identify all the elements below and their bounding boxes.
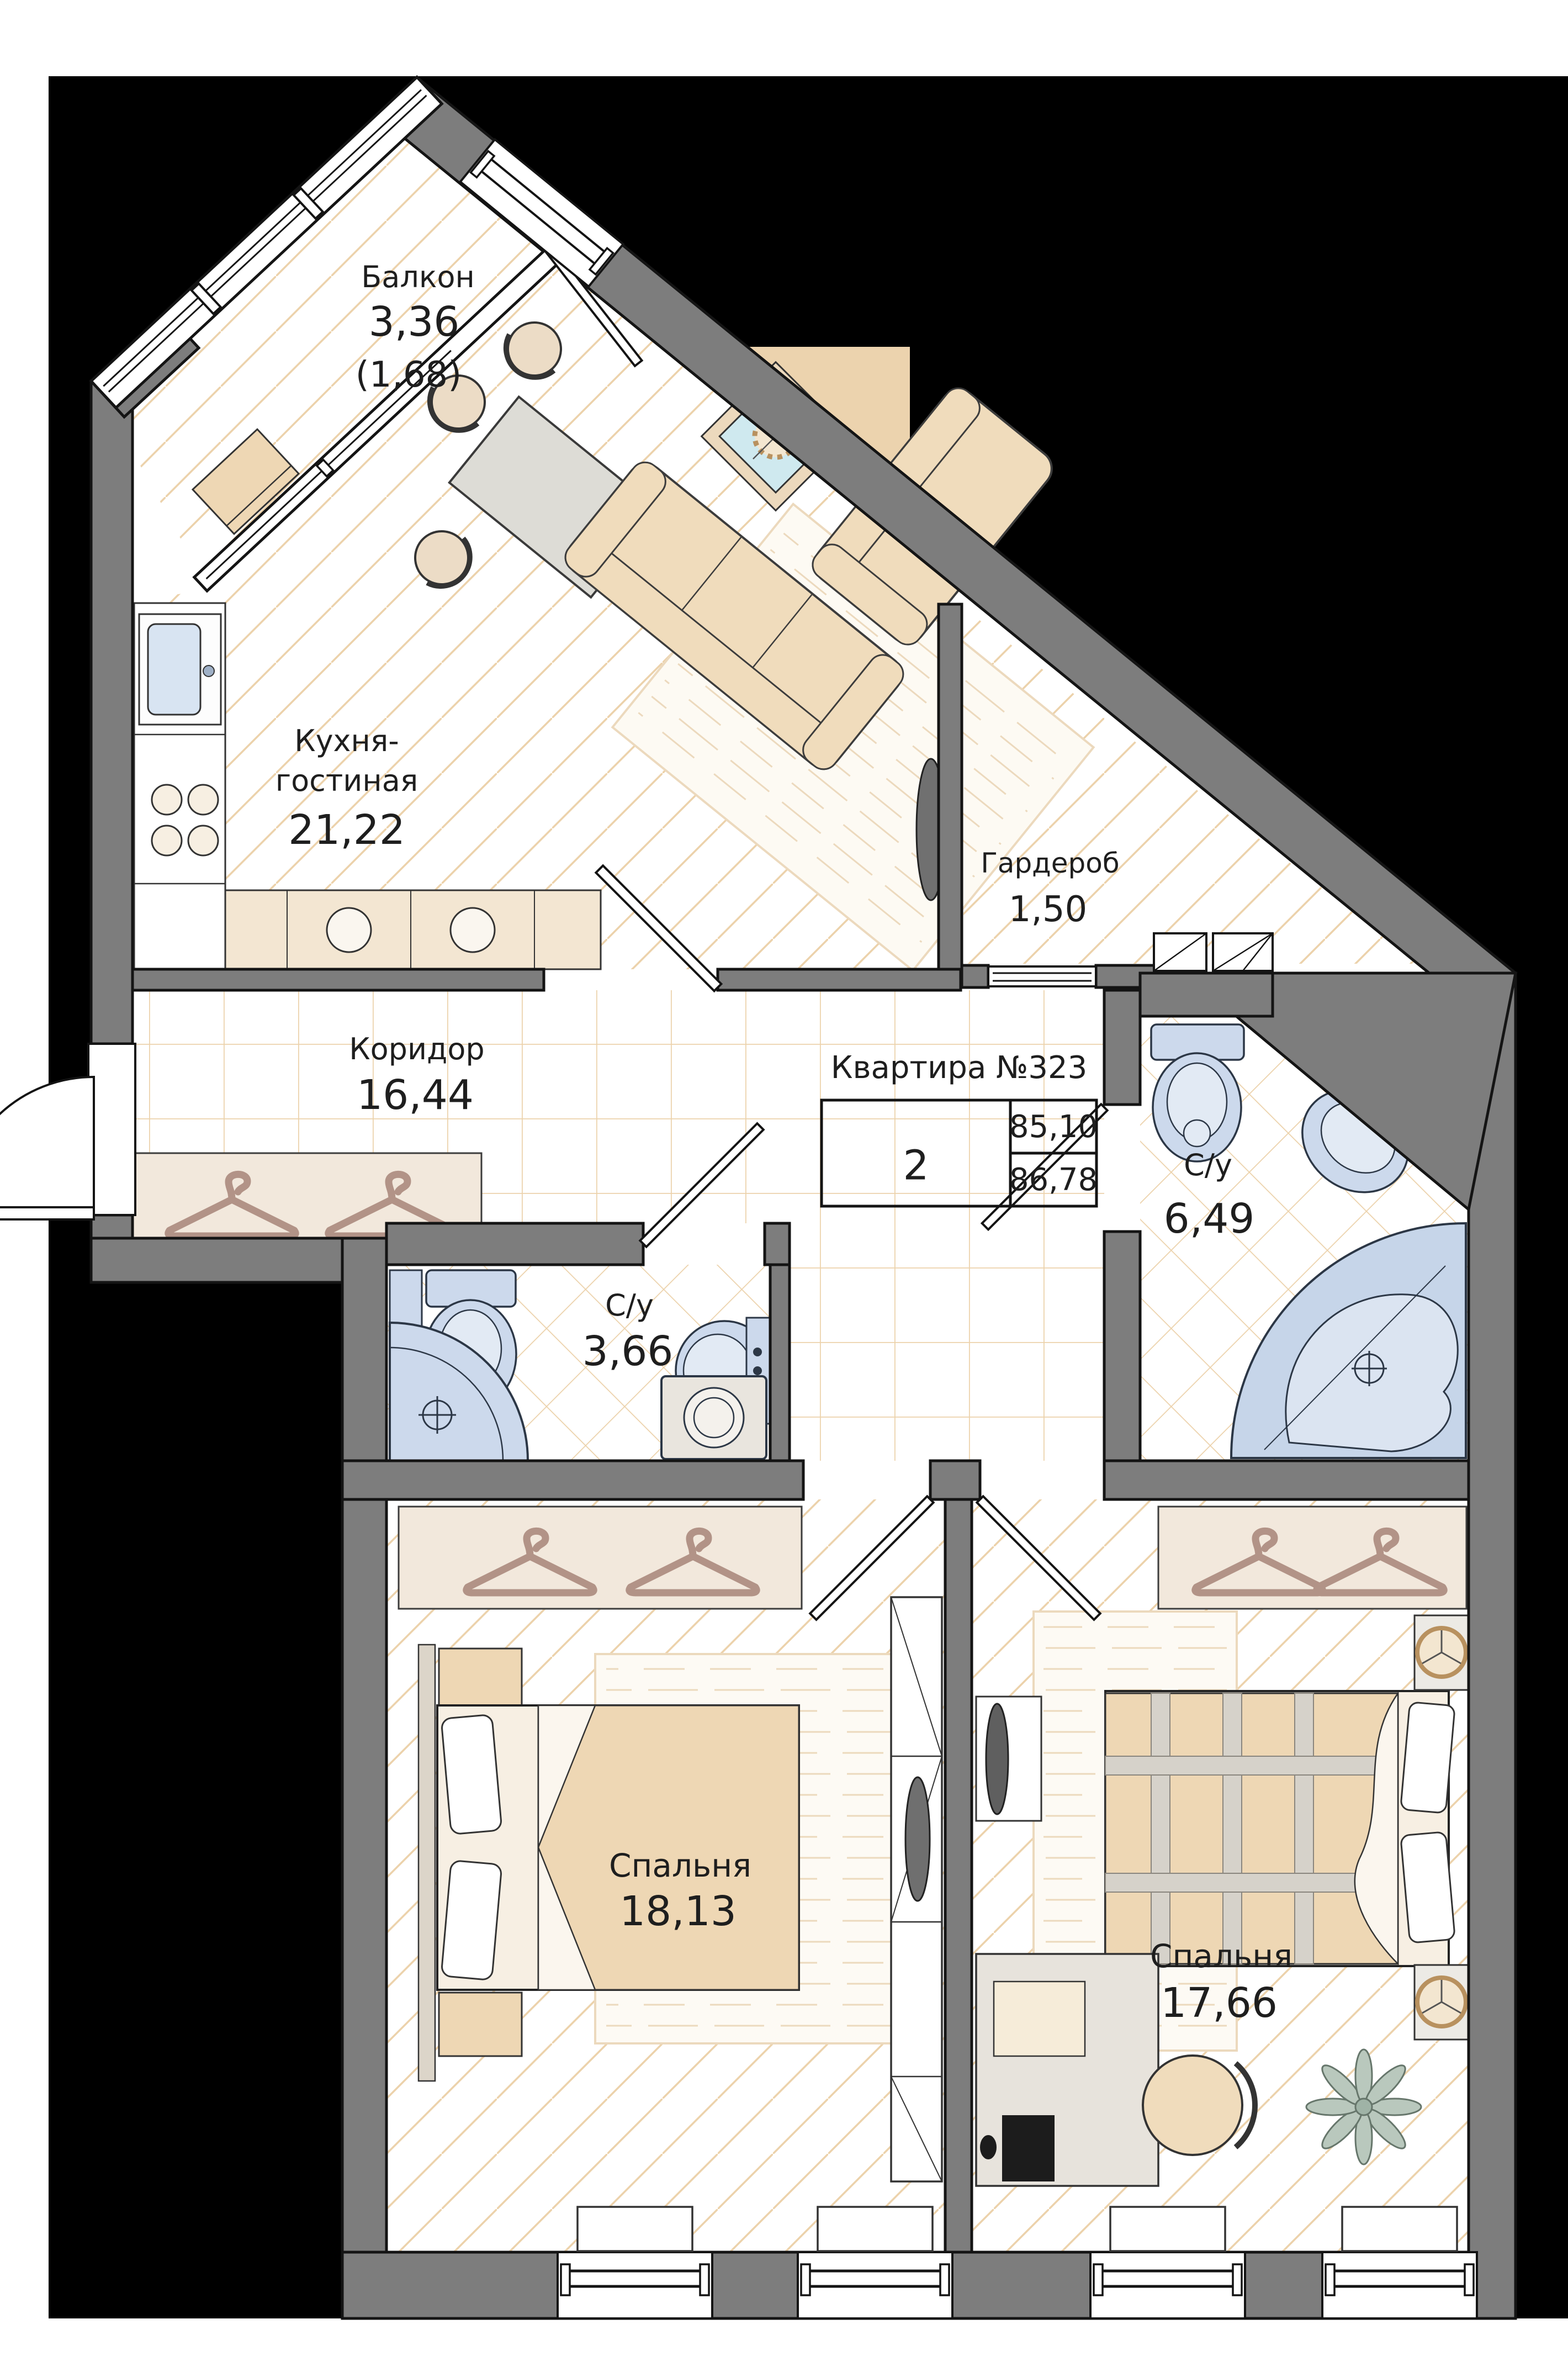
wall-bath-small-top-b [765,1223,790,1265]
washing-machine [661,1376,766,1459]
bedroom1-wardrobe [399,1507,802,1609]
bath-small-area: 3,66 [582,1328,674,1375]
wall-corridor-top-right [718,969,961,990]
bed-double-2 [1105,1691,1455,1966]
plant [1306,2049,1421,2164]
kitchen-sink [148,624,200,715]
wall-bedroom-divider [945,1499,972,2252]
wall-bath-large-top [1140,973,1273,1016]
wall-console-monitor [976,1697,1041,1821]
headboard-panel [419,1645,435,2081]
mouse [980,2135,997,2159]
paper [994,1982,1085,2056]
wall-bath-small-right [770,1265,790,1461]
nightstand [439,1993,522,2056]
rooms-count: 2 [903,1142,929,1190]
pillow [1401,1832,1455,1943]
apartment-title: Квартира №323 [831,1050,1087,1086]
window [798,2207,952,2318]
keyboard [1002,2115,1055,2181]
radiator [1110,2207,1225,2251]
bedroom2-wardrobe [1158,1507,1466,1609]
wall-bath-large-left-a [1104,990,1140,1105]
window [1090,2207,1245,2318]
wall-bedroom1-left [342,1238,386,2318]
window [558,2207,712,2318]
bath-large-area: 6,49 [1164,1195,1255,1243]
monitor [986,1704,1008,1814]
bedroom2-label: Спальня [1150,1937,1292,1975]
bath-large-label: С/у [1184,1148,1232,1182]
corridor-area: 16,44 [357,1071,474,1119]
pillow [441,1860,502,1980]
tv-bedroom1 [905,1777,930,1901]
wall-bath-small-top-a [386,1223,643,1265]
bedroom2-area: 17,66 [1161,1979,1278,2027]
nightstand-decor-top [1415,1615,1469,1690]
wall-wardrobe-bottom-a [962,965,988,987]
balcony-area-reduced: (1,68) [356,355,462,395]
wall-bath-large-left-b [1104,1232,1140,1461]
nightstand [439,1649,522,1712]
wall-bedrooms-top-pillar [930,1461,980,1499]
kitchen-area: 21,22 [288,806,405,854]
wall-bedrooms-top-b [1104,1461,1469,1499]
kitchen-counter [134,603,225,969]
pillow [441,1714,502,1834]
balcony-label: Балкон [361,260,475,294]
wall-left-upper [91,381,133,1044]
nightstand-decor-bottom [1415,1965,1469,2040]
wardrobe-label: Гардероб [981,847,1119,879]
radiator [578,2207,692,2251]
vent-shafts [1154,933,1273,971]
wall-bedrooms-top-a [342,1461,803,1499]
area-total: 86,78 [1009,1162,1098,1198]
pillow [1401,1702,1455,1813]
bedroom1-area: 18,13 [619,1888,737,1935]
kitchen-lower-cabinets [225,890,601,969]
radiator [818,2207,933,2251]
corridor-label: Коридор [349,1032,484,1066]
plaid-blanket [1105,1693,1398,1964]
bedroom1-label: Спальня [609,1847,751,1884]
floor-plan-page: Квартира №323 2 85,10 86,78 Балкон 3,36 … [0,0,1568,2372]
bath-small-label: С/у [605,1288,654,1323]
kitchen-label-2: гостиная [276,763,419,798]
oven [327,908,371,952]
wall-wardrobe-left [939,604,962,969]
area-main: 85,10 [1009,1109,1098,1145]
radiator [1342,2207,1457,2251]
window [1322,2207,1477,2318]
wardrobe-area: 1,50 [1009,889,1088,930]
desk [976,1954,1158,2186]
washing-machine-kitchen [451,908,495,952]
wall-corridor-top-left [133,969,544,990]
door-leaf [0,1207,94,1219]
floor-plan: Квартира №323 2 85,10 86,78 Балкон 3,36 … [0,0,1568,2372]
kitchen-label-1: Кухня- [294,723,399,758]
balcony-area: 3,36 [369,298,460,346]
wardrobe-sliding-door [988,966,1096,986]
toilet-large-bath [1151,1024,1244,1161]
